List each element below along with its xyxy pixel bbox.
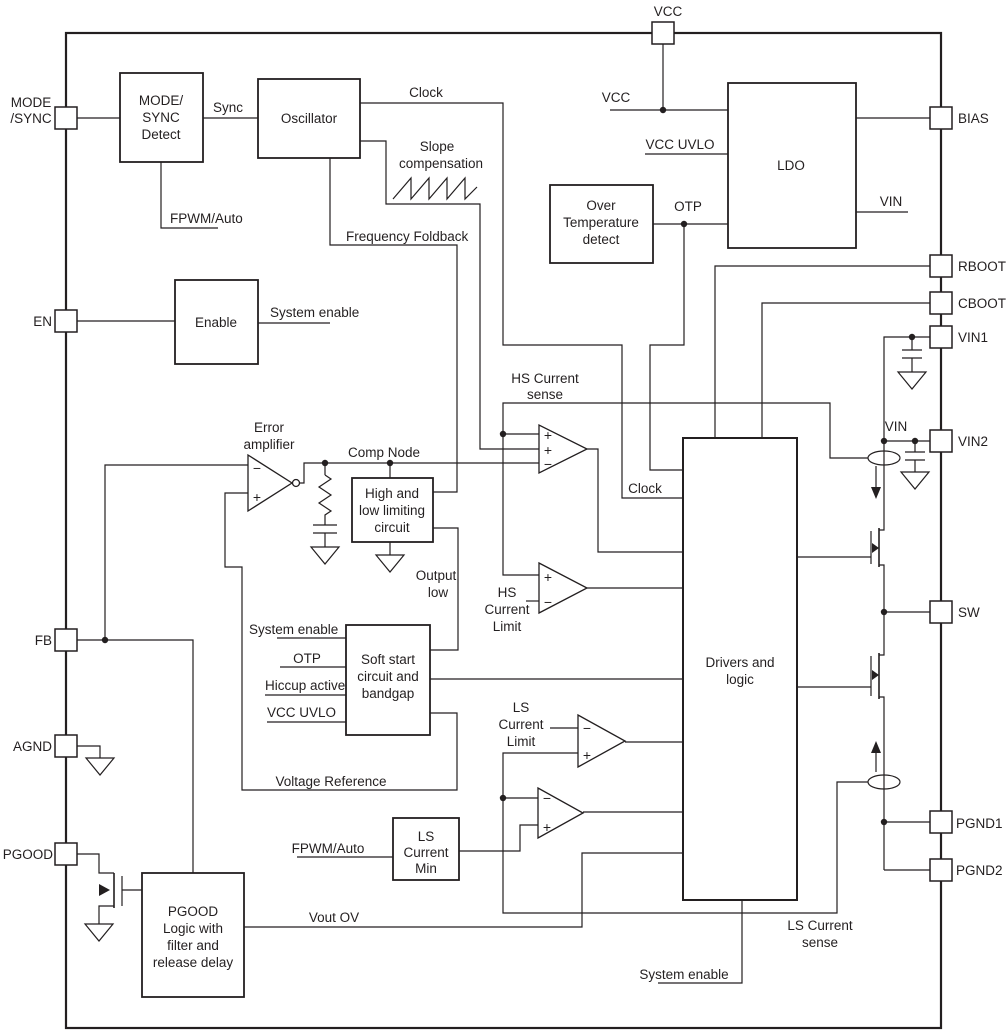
pgood-mosfet [99, 873, 122, 908]
block-label: Soft start [361, 652, 415, 667]
net-label-ls-sense1: LS Current [787, 918, 853, 933]
block-label: LDO [777, 158, 805, 173]
block-label: circuit and [357, 669, 419, 684]
net-label-ls-limit2: Current [498, 717, 543, 732]
wire-fb [77, 640, 193, 873]
net-label-vcc: VCC [602, 90, 631, 105]
net-label-hs-sense1: HS Current [511, 371, 579, 386]
block-label: release delay [153, 955, 234, 970]
pin-label-en: EN [33, 314, 52, 329]
minus-sign: − [544, 594, 552, 610]
net-label-clock-mid: Clock [628, 481, 662, 496]
pin-label-bias: BIAS [958, 111, 989, 126]
ground-symbols [85, 372, 929, 941]
minus-sign: − [253, 460, 261, 476]
wire-pgood-source [99, 906, 114, 924]
block-label: MODE/ [139, 93, 184, 108]
net-label-system-enable: System enable [270, 305, 359, 320]
mosfet-arrow-icon [99, 884, 110, 896]
wire-pwm-out [587, 449, 683, 552]
pin-label-agnd: AGND [13, 739, 52, 754]
pin-label-pgnd1: PGND1 [956, 816, 1003, 831]
plus-sign: + [583, 747, 591, 763]
net-label-slope1: Slope [420, 139, 455, 154]
wire-pgood-drain [77, 854, 114, 873]
wire-ls-min-out [459, 825, 538, 851]
block-label: low limiting [359, 503, 425, 518]
arrow-up-icon [871, 741, 881, 753]
ground-icon [898, 372, 926, 389]
wire-ls-source [879, 697, 884, 870]
block-label: Oscillator [281, 111, 338, 126]
sawtooth-icon [393, 178, 477, 199]
pin-vcc [652, 22, 674, 44]
net-label-vcc-uvlo: VCC UVLO [645, 137, 714, 152]
block-label: Drivers and [705, 655, 774, 670]
wire-hs-drain [879, 441, 884, 530]
pin-label-fb: FB [35, 633, 52, 648]
pin-cboot [930, 292, 952, 314]
net-label-error2: amplifier [243, 437, 295, 452]
net-label-vin-fet: VIN [885, 419, 908, 434]
minus-sign: − [543, 790, 551, 806]
pin-label-rboot: RBOOT [958, 259, 1006, 274]
block-label: circuit [374, 520, 410, 535]
ground-icon [85, 924, 113, 941]
plus-sign: + [543, 819, 551, 835]
resistor-icon [319, 475, 331, 525]
wire-fb-to-erramp [105, 465, 248, 640]
wire-frequency-foldback [330, 158, 457, 492]
net-label-output-low2: low [428, 585, 449, 600]
pin-label-cboot: CBOOT [958, 296, 1006, 311]
net-label-voltage-ref: Voltage Reference [275, 774, 386, 789]
net-label-fpwm-auto-bot: FPWM/Auto [292, 841, 365, 856]
pin-label-sync: /SYNC [10, 111, 52, 126]
net-label-vout-ov: Vout OV [309, 910, 359, 925]
net-label-sysen-bottom: System enable [639, 967, 728, 982]
block-label: Min [415, 861, 437, 876]
block-label: logic [726, 672, 754, 687]
hs-mosfet [871, 528, 879, 567]
ground-icon [311, 547, 339, 564]
block-label: Current [403, 845, 448, 860]
mosfet-arrow-icon [872, 670, 879, 680]
block-label: Logic with [163, 921, 223, 936]
pin-label-mode: MODE [11, 95, 52, 110]
pin-pgnd2 [930, 859, 952, 881]
minus-sign: − [544, 456, 552, 472]
net-label-sysen-soft: System enable [249, 622, 338, 637]
minus-sign: − [583, 720, 591, 736]
net-label-ls-limit1: LS [513, 700, 530, 715]
plus-sign: + [544, 569, 552, 585]
cap-comp-icon [313, 525, 337, 533]
error-amp-output-bubble [293, 480, 300, 487]
pin-pgnd1 [930, 811, 952, 833]
pin-label-vin2: VIN2 [958, 434, 988, 449]
mosfet-arrow-icon [872, 543, 879, 553]
block-label: Over [586, 198, 616, 213]
net-label-sync: Sync [213, 100, 243, 115]
pin-vin2 [930, 430, 952, 452]
net-label-slope2: compensation [399, 156, 483, 171]
pin-label-pgood: PGOOD [3, 847, 54, 862]
ground-icon [901, 472, 929, 489]
block-label: bandgap [362, 686, 415, 701]
pin-mode-sync [55, 107, 77, 129]
cap-vin1-icon [902, 350, 922, 358]
wire-rboot [715, 266, 930, 438]
net-label-hiccup: Hiccup active [265, 678, 345, 693]
ls-mosfet [871, 653, 879, 699]
cap-vin2-icon [905, 452, 925, 460]
pin-label-vin1: VIN1 [958, 330, 988, 345]
block-label: PGOOD [168, 904, 219, 919]
plus-sign: + [544, 427, 552, 443]
pin-sw [930, 601, 952, 623]
net-label-ls-sense2: sense [802, 935, 838, 950]
block-label: LS [418, 829, 435, 844]
plus-sign: + [253, 489, 261, 505]
wire-otp-branch [650, 224, 684, 470]
net-label-vin: VIN [880, 194, 903, 209]
ground-icon [86, 758, 114, 775]
net-label-freq-foldback: Frequency Foldback [346, 229, 469, 244]
net-label-hs-limit1: HS [498, 585, 517, 600]
net-label-otp-soft: OTP [293, 651, 321, 666]
pin-label-sw: SW [958, 605, 980, 620]
ground-icon [376, 555, 404, 572]
block-label: detect [583, 232, 620, 247]
net-label-output-low1: Output [416, 568, 457, 583]
block-label: High and [365, 486, 419, 501]
pin-fb [55, 629, 77, 651]
net-label-vcc-uvlo-soft: VCC UVLO [267, 705, 336, 720]
net-label-fpwm-auto: FPWM/Auto [170, 211, 243, 226]
pin-pgood [55, 843, 77, 865]
pin-rboot [930, 255, 952, 277]
wire-agnd [77, 746, 100, 758]
net-label-hs-sense2: sense [527, 387, 563, 402]
net-label-clock: Clock [409, 85, 443, 100]
pin-agnd [55, 735, 77, 757]
net-label-error1: Error [254, 420, 285, 435]
wire-cboot [762, 303, 930, 438]
functional-block-diagram: MODE /SYNC EN FB AGND PGOOD VCC BIAS RBO… [0, 0, 1008, 1035]
block-label: filter and [167, 938, 219, 953]
pin-en [55, 310, 77, 332]
arrow-down-icon [871, 487, 881, 499]
block-label: Detect [141, 127, 180, 142]
block-label: Temperature [563, 215, 639, 230]
net-label-hs-limit3: Limit [493, 619, 522, 634]
pin-vin1 [930, 326, 952, 348]
net-label-comp-node: Comp Node [348, 445, 420, 460]
wire-ls-drain [879, 612, 884, 655]
net-label-hs-limit2: Current [484, 602, 529, 617]
pin-label-vcc: VCC [654, 4, 683, 19]
net-label-otp: OTP [674, 199, 702, 214]
pin-bias [930, 107, 952, 129]
net-label-ls-limit3: Limit [507, 734, 536, 749]
schematic-canvas: MODE /SYNC EN FB AGND PGOOD VCC BIAS RBO… [0, 0, 1008, 1035]
pin-label-pgnd2: PGND2 [956, 863, 1003, 878]
block-label: Enable [195, 315, 237, 330]
wire-hs-source [879, 565, 884, 612]
block-label: SYNC [142, 110, 180, 125]
